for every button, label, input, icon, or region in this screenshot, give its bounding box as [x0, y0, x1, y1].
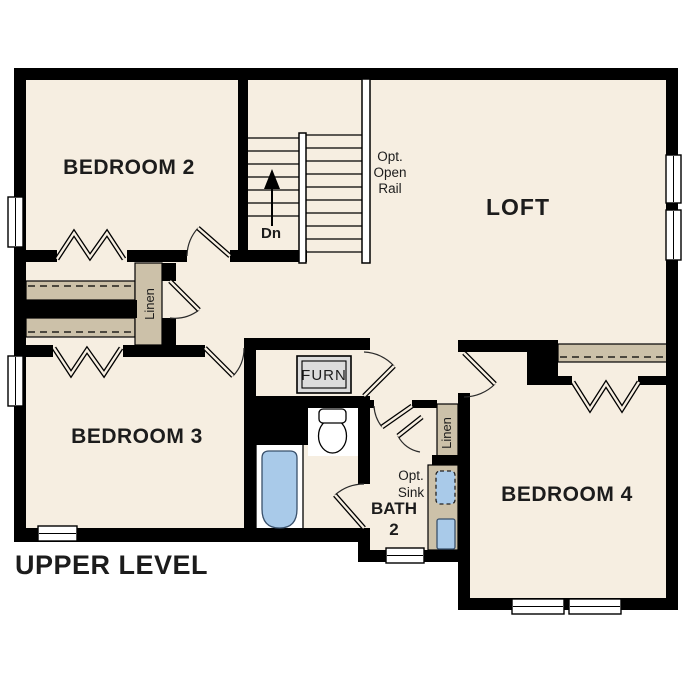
wall-segment: [558, 376, 572, 385]
plan-title: UPPER LEVEL: [15, 550, 208, 580]
opt-sink-label-line2: Sink: [398, 485, 425, 500]
stair-center-rail: [299, 133, 306, 263]
wall-segment: [458, 340, 527, 352]
wall-segment: [26, 300, 137, 318]
wall-segment: [256, 408, 308, 445]
linen-right-label: Linen: [439, 417, 454, 449]
opt-open-rail-label-line3: Rail: [378, 181, 401, 196]
wall-segment: [358, 408, 370, 484]
wall-segment: [162, 318, 176, 345]
bath2-label-line1: BATH: [371, 499, 417, 518]
opt-sink-label-line1: Opt.: [398, 468, 424, 483]
sink: [437, 519, 455, 549]
wall-segment: [244, 396, 370, 408]
wall-segment: [638, 376, 668, 385]
wall-segment: [666, 68, 678, 610]
loft-label: LOFT: [486, 194, 550, 220]
bedroom2-closet-shelf: [26, 281, 135, 300]
toilet: [319, 409, 347, 453]
wall-segment: [14, 68, 26, 542]
wall-segment: [14, 345, 53, 357]
stair-open-rail: [362, 79, 370, 263]
linen-left-label: Linen: [142, 288, 157, 320]
wall-segment: [14, 250, 57, 262]
bedroom4-closet-shelf: [558, 344, 668, 362]
floor-plan: BEDROOM 2 BEDROOM 3 BEDROOM 4 LOFT BATH …: [0, 0, 687, 687]
wall-segment: [162, 263, 176, 281]
window: [666, 155, 681, 203]
wall-segment: [230, 250, 307, 262]
wall-segment: [238, 68, 248, 262]
window: [666, 210, 681, 260]
wall-segment: [127, 250, 187, 262]
wall-segment: [14, 68, 678, 80]
stairs-down-label: Dn: [261, 225, 281, 242]
bedroom4-label: BEDROOM 4: [501, 483, 633, 506]
wall-segment: [432, 455, 458, 465]
furnace-label: FURN: [301, 367, 347, 384]
wall-segment: [458, 393, 470, 610]
window: [512, 599, 564, 614]
wall-segment: [527, 340, 558, 385]
opt-open-rail-label-line2: Open: [373, 165, 406, 180]
wall-segment: [412, 400, 437, 408]
bathtub: [262, 451, 297, 528]
bedroom3-closet-shelf: [26, 318, 135, 337]
wall-segment: [244, 338, 256, 540]
window: [8, 356, 23, 406]
window: [386, 548, 424, 563]
optional-sink: [436, 471, 455, 504]
floor-plan-page: BEDROOM 2 BEDROOM 3 BEDROOM 4 LOFT BATH …: [0, 0, 687, 687]
bedroom3-label: BEDROOM 3: [71, 425, 203, 448]
bath2-label-line2: 2: [389, 520, 398, 539]
wall-segment: [123, 345, 205, 357]
bedroom2-label: BEDROOM 2: [63, 156, 195, 179]
opt-open-rail-label-line1: Opt.: [377, 149, 403, 164]
window: [8, 197, 23, 247]
wall-segment: [244, 338, 370, 350]
wall-segment: [366, 400, 374, 408]
window: [569, 599, 621, 614]
wall-segment: [458, 598, 678, 610]
window: [38, 526, 77, 541]
